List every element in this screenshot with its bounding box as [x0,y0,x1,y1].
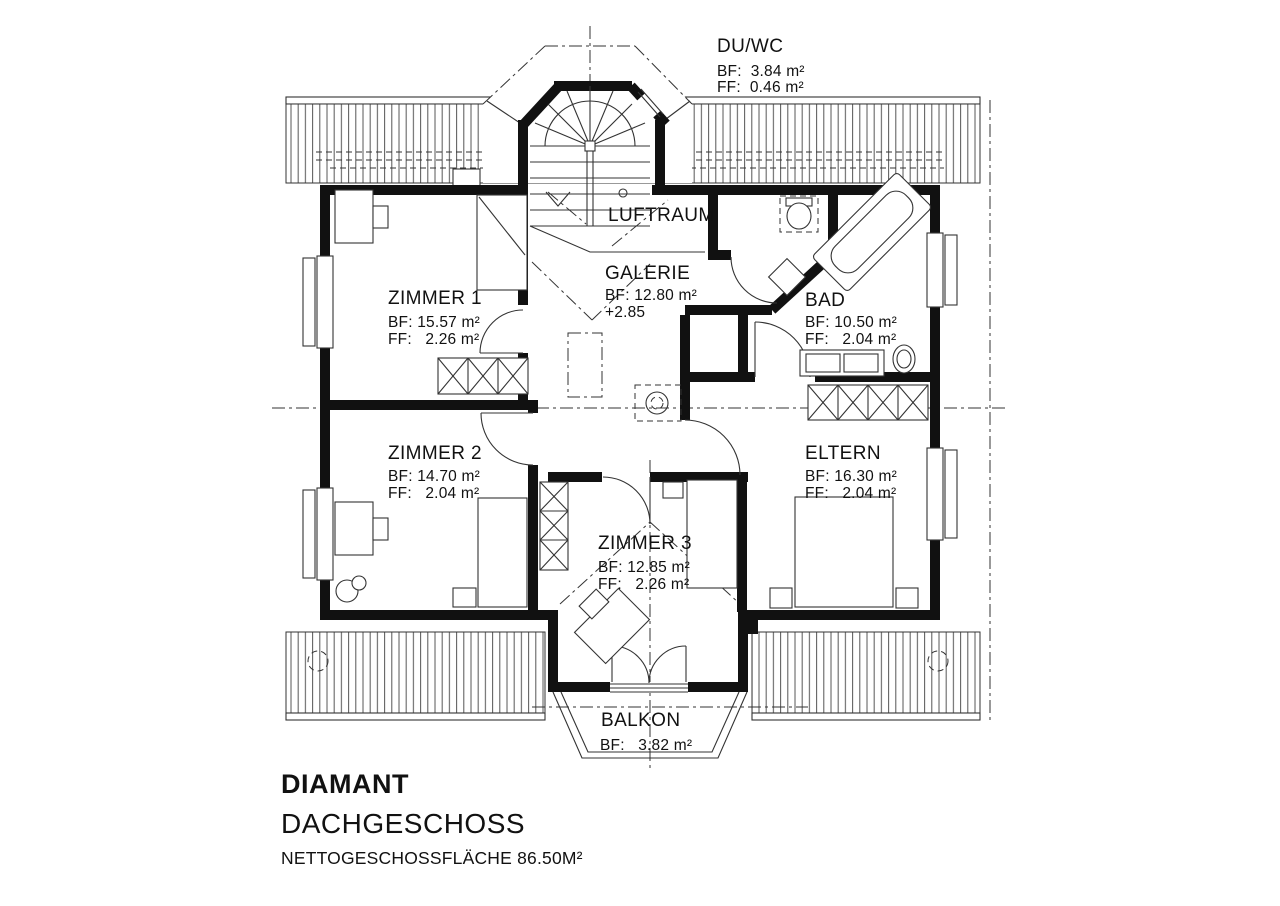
label-bad-ff: FF: 2.04 m² [805,331,896,348]
label-bad: BAD [805,290,845,311]
label-eltern-ff: FF: 2.04 m² [805,485,896,502]
label-zimmer3: ZIMMER 3 [598,533,692,554]
shaft-dashed [568,333,602,397]
stair-newel-post [585,141,595,151]
label-duwc: DU/WC [717,36,783,57]
double-sink [800,350,884,376]
label-galerie-bf: BF: 12.80 m² [605,287,697,304]
window-zimmer2 [317,488,333,580]
label-galerie: GALERIE [605,263,690,284]
label-zimmer1-bf: BF: 15.57 m² [388,314,480,331]
label-balkon-bf: BF: 3.82 m² [600,737,692,754]
label-eltern-bf: BF: 16.30 m² [805,468,897,485]
label-duwc-bf: BF: 3.84 m² [717,63,805,80]
label-zimmer2-ff: FF: 2.04 m² [388,485,479,502]
title-block: DIAMANT DACHGESCHOSS NETTOGESCHOSSFLÄCHE… [281,769,583,868]
label-zimmer3-bf: BF: 12.85 m² [598,559,690,576]
label-luftraum: LUFTRAUM [608,205,715,226]
chimney-box [635,385,681,421]
label-bad-bf: BF: 10.50 m² [805,314,897,331]
net-area-text: NETTOGESCHOSSFLÄCHE 86.50M² [281,848,583,868]
bed-zimmer2 [478,498,527,607]
label-zimmer3-ff: FF: 2.26 m² [598,576,689,593]
window-zimmer1 [317,256,333,348]
label-zimmer2: ZIMMER 2 [388,443,482,464]
label-balkon: BALKON [601,710,681,731]
wardrobe-eltern [808,385,928,420]
window-bad [927,233,943,307]
bed-eltern [795,497,893,607]
toilet-duwc [787,203,811,229]
floor-plan-page: DU/WC BF: 3.84 m² FF: 0.46 m² LUFTRAUM G… [0,0,1280,906]
floor-plan-drawing: DU/WC BF: 3.84 m² FF: 0.46 m² LUFTRAUM G… [0,0,1280,906]
desk-zimmer2 [335,502,373,555]
window-eltern [927,448,943,540]
label-zimmer1-ff: FF: 2.26 m² [388,331,479,348]
wardrobe-zimmer3 [540,482,568,570]
floor-title: DACHGESCHOSS [281,808,525,839]
toilet-bad [893,345,915,373]
void-edge [530,226,705,252]
label-zimmer1: ZIMMER 1 [388,288,482,309]
project-title: DIAMANT [281,769,409,799]
label-galerie-level: +2.85 [605,304,645,321]
bed-zimmer3 [687,480,737,588]
desk-zimmer1 [335,190,373,243]
label-duwc-ff: FF: 0.46 m² [717,79,804,96]
wardrobe-zimmer1 [438,358,528,394]
label-eltern: ELTERN [805,443,881,464]
label-zimmer2-bf: BF: 14.70 m² [388,468,480,485]
bed-zimmer1 [477,195,527,290]
chimney-flue [646,392,668,414]
